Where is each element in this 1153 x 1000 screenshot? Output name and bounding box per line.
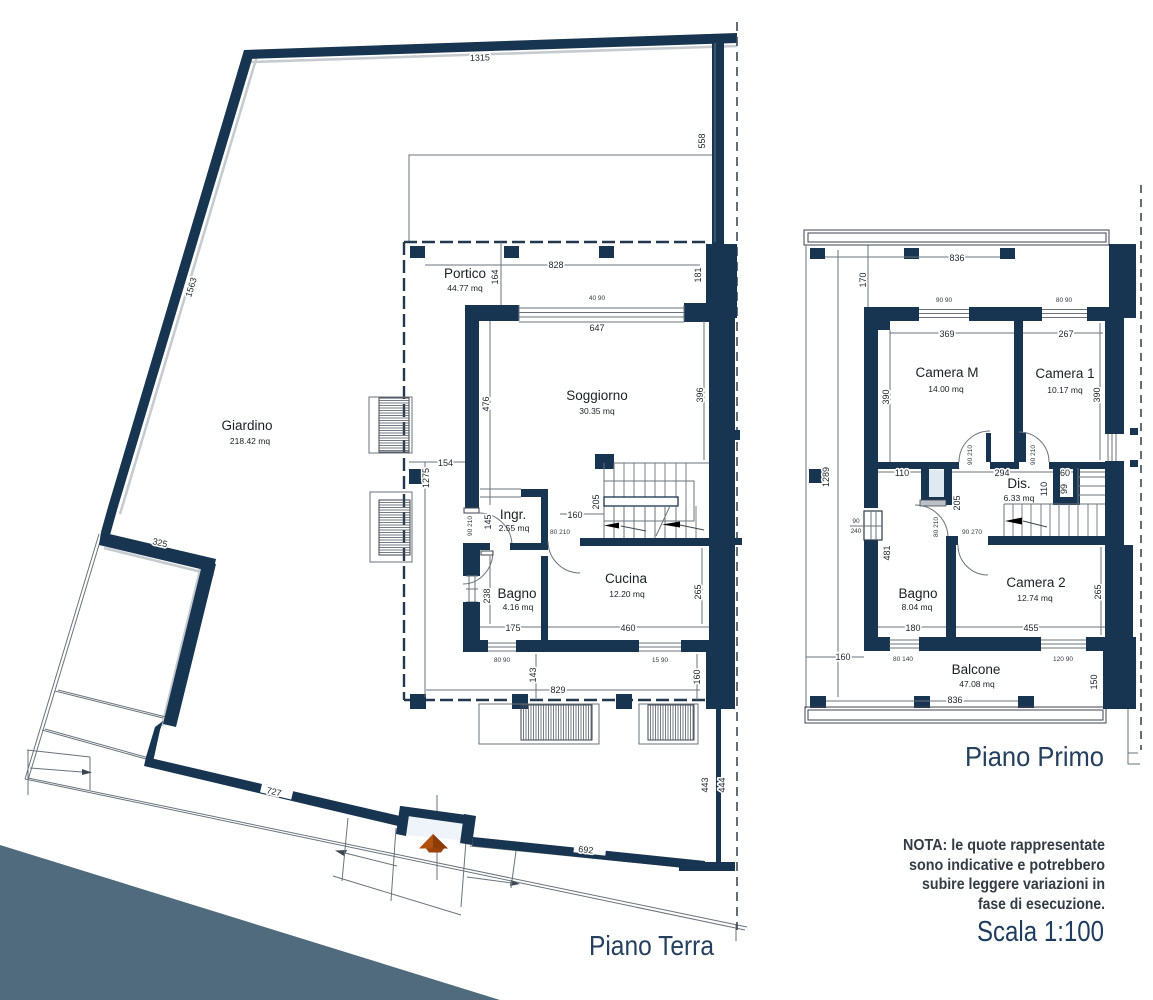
svg-text:2.55 mq: 2.55 mq	[499, 523, 530, 533]
svg-text:205: 205	[591, 494, 601, 509]
svg-text:80 210: 80 210	[550, 529, 570, 536]
svg-text:390: 390	[1092, 387, 1102, 402]
svg-text:396: 396	[695, 387, 705, 402]
svg-text:NOTA: le quote rappresentate: NOTA: le quote rappresentate	[903, 837, 1105, 854]
svg-text:110: 110	[895, 468, 909, 478]
svg-text:90 210: 90 210	[467, 516, 474, 536]
svg-text:443: 443	[700, 777, 710, 792]
svg-text:829: 829	[550, 685, 565, 695]
svg-text:8.04 mq: 8.04 mq	[902, 602, 933, 612]
svg-text:390: 390	[881, 389, 891, 404]
svg-text:Piano Primo: Piano Primo	[965, 741, 1104, 772]
svg-text:6.33 mq: 6.33 mq	[1004, 493, 1035, 503]
svg-text:Dis.: Dis.	[1007, 476, 1030, 491]
svg-text:180: 180	[905, 623, 920, 633]
svg-text:47.08 mq: 47.08 mq	[959, 679, 995, 689]
svg-text:Ingr.: Ingr.	[500, 507, 526, 522]
svg-text:692: 692	[578, 844, 594, 856]
svg-text:836: 836	[947, 695, 962, 705]
svg-text:558: 558	[697, 133, 707, 148]
svg-text:12.20 mq: 12.20 mq	[609, 589, 645, 599]
svg-text:1289: 1289	[821, 467, 831, 487]
svg-text:40 90: 40 90	[589, 295, 606, 302]
svg-text:Soggiorno: Soggiorno	[566, 388, 628, 403]
svg-text:80 90: 80 90	[1056, 297, 1073, 304]
svg-text:Camera M: Camera M	[915, 365, 978, 380]
svg-text:Cucina: Cucina	[605, 571, 648, 586]
svg-text:175: 175	[505, 623, 520, 633]
svg-text:90 210: 90 210	[1030, 445, 1037, 465]
svg-text:110: 110	[1039, 482, 1049, 496]
svg-text:164: 164	[490, 269, 500, 284]
svg-text:Camera 1: Camera 1	[1035, 366, 1094, 381]
svg-text:160: 160	[567, 510, 582, 520]
svg-text:836: 836	[949, 253, 964, 263]
svg-text:90: 90	[852, 518, 860, 525]
svg-text:647: 647	[589, 323, 604, 333]
svg-text:subire leggere variazioni in: subire leggere variazioni in	[922, 876, 1105, 893]
svg-text:160: 160	[835, 652, 850, 662]
svg-text:150: 150	[1089, 674, 1099, 689]
svg-text:sono indicative e potrebbero: sono indicative e potrebbero	[909, 857, 1105, 874]
svg-text:145: 145	[483, 514, 493, 529]
svg-text:12.74 mq: 12.74 mq	[1017, 593, 1053, 603]
svg-text:44.77 mq: 44.77 mq	[447, 283, 483, 293]
svg-text:Portico: Portico	[444, 266, 486, 281]
svg-text:60: 60	[1060, 468, 1070, 478]
svg-text:267: 267	[1058, 329, 1073, 339]
svg-text:460: 460	[620, 623, 635, 633]
svg-text:1315: 1315	[470, 52, 490, 63]
svg-text:1275: 1275	[421, 468, 431, 488]
svg-text:15 90: 15 90	[652, 657, 669, 664]
svg-text:Scala 1:100: Scala 1:100	[977, 916, 1104, 948]
svg-text:fase di esecuzione.: fase di esecuzione.	[978, 896, 1105, 913]
svg-text:Camera 2: Camera 2	[1006, 575, 1065, 590]
svg-text:10.17 mq: 10.17 mq	[1047, 385, 1083, 395]
svg-text:90 270: 90 270	[962, 529, 982, 536]
svg-text:143: 143	[528, 667, 538, 682]
svg-text:99: 99	[1059, 484, 1069, 494]
svg-text:80 140: 80 140	[893, 656, 913, 663]
svg-text:265: 265	[1093, 584, 1103, 599]
svg-text:181: 181	[693, 267, 703, 282]
svg-text:476: 476	[481, 396, 491, 411]
svg-text:481: 481	[882, 545, 892, 560]
svg-text:Bagno: Bagno	[497, 586, 536, 601]
svg-text:80 90: 80 90	[494, 657, 511, 664]
svg-text:Bagno: Bagno	[898, 586, 937, 601]
svg-text:828: 828	[548, 260, 563, 270]
svg-text:80 210: 80 210	[933, 517, 940, 537]
svg-text:Piano Terra: Piano Terra	[589, 930, 714, 961]
svg-text:218.42 mq: 218.42 mq	[230, 436, 270, 446]
svg-text:90 210: 90 210	[967, 445, 974, 465]
svg-text:369: 369	[939, 329, 954, 339]
svg-text:Balcone: Balcone	[952, 662, 1001, 677]
svg-text:30.35 mq: 30.35 mq	[579, 406, 615, 416]
svg-text:205: 205	[952, 495, 962, 510]
svg-text:14.00 mq: 14.00 mq	[928, 384, 964, 394]
svg-text:265: 265	[693, 584, 703, 599]
svg-text:120 90: 120 90	[1053, 656, 1073, 663]
svg-text:455: 455	[1023, 623, 1038, 633]
svg-text:4.16 mq: 4.16 mq	[503, 602, 534, 612]
svg-text:170: 170	[858, 272, 868, 287]
svg-text:160: 160	[692, 669, 702, 684]
svg-text:154: 154	[438, 458, 453, 468]
svg-text:444: 444	[717, 777, 727, 792]
svg-text:238: 238	[482, 588, 492, 603]
svg-text:Giardino: Giardino	[221, 418, 272, 433]
svg-text:240: 240	[851, 528, 862, 535]
svg-text:90 90: 90 90	[936, 297, 953, 304]
